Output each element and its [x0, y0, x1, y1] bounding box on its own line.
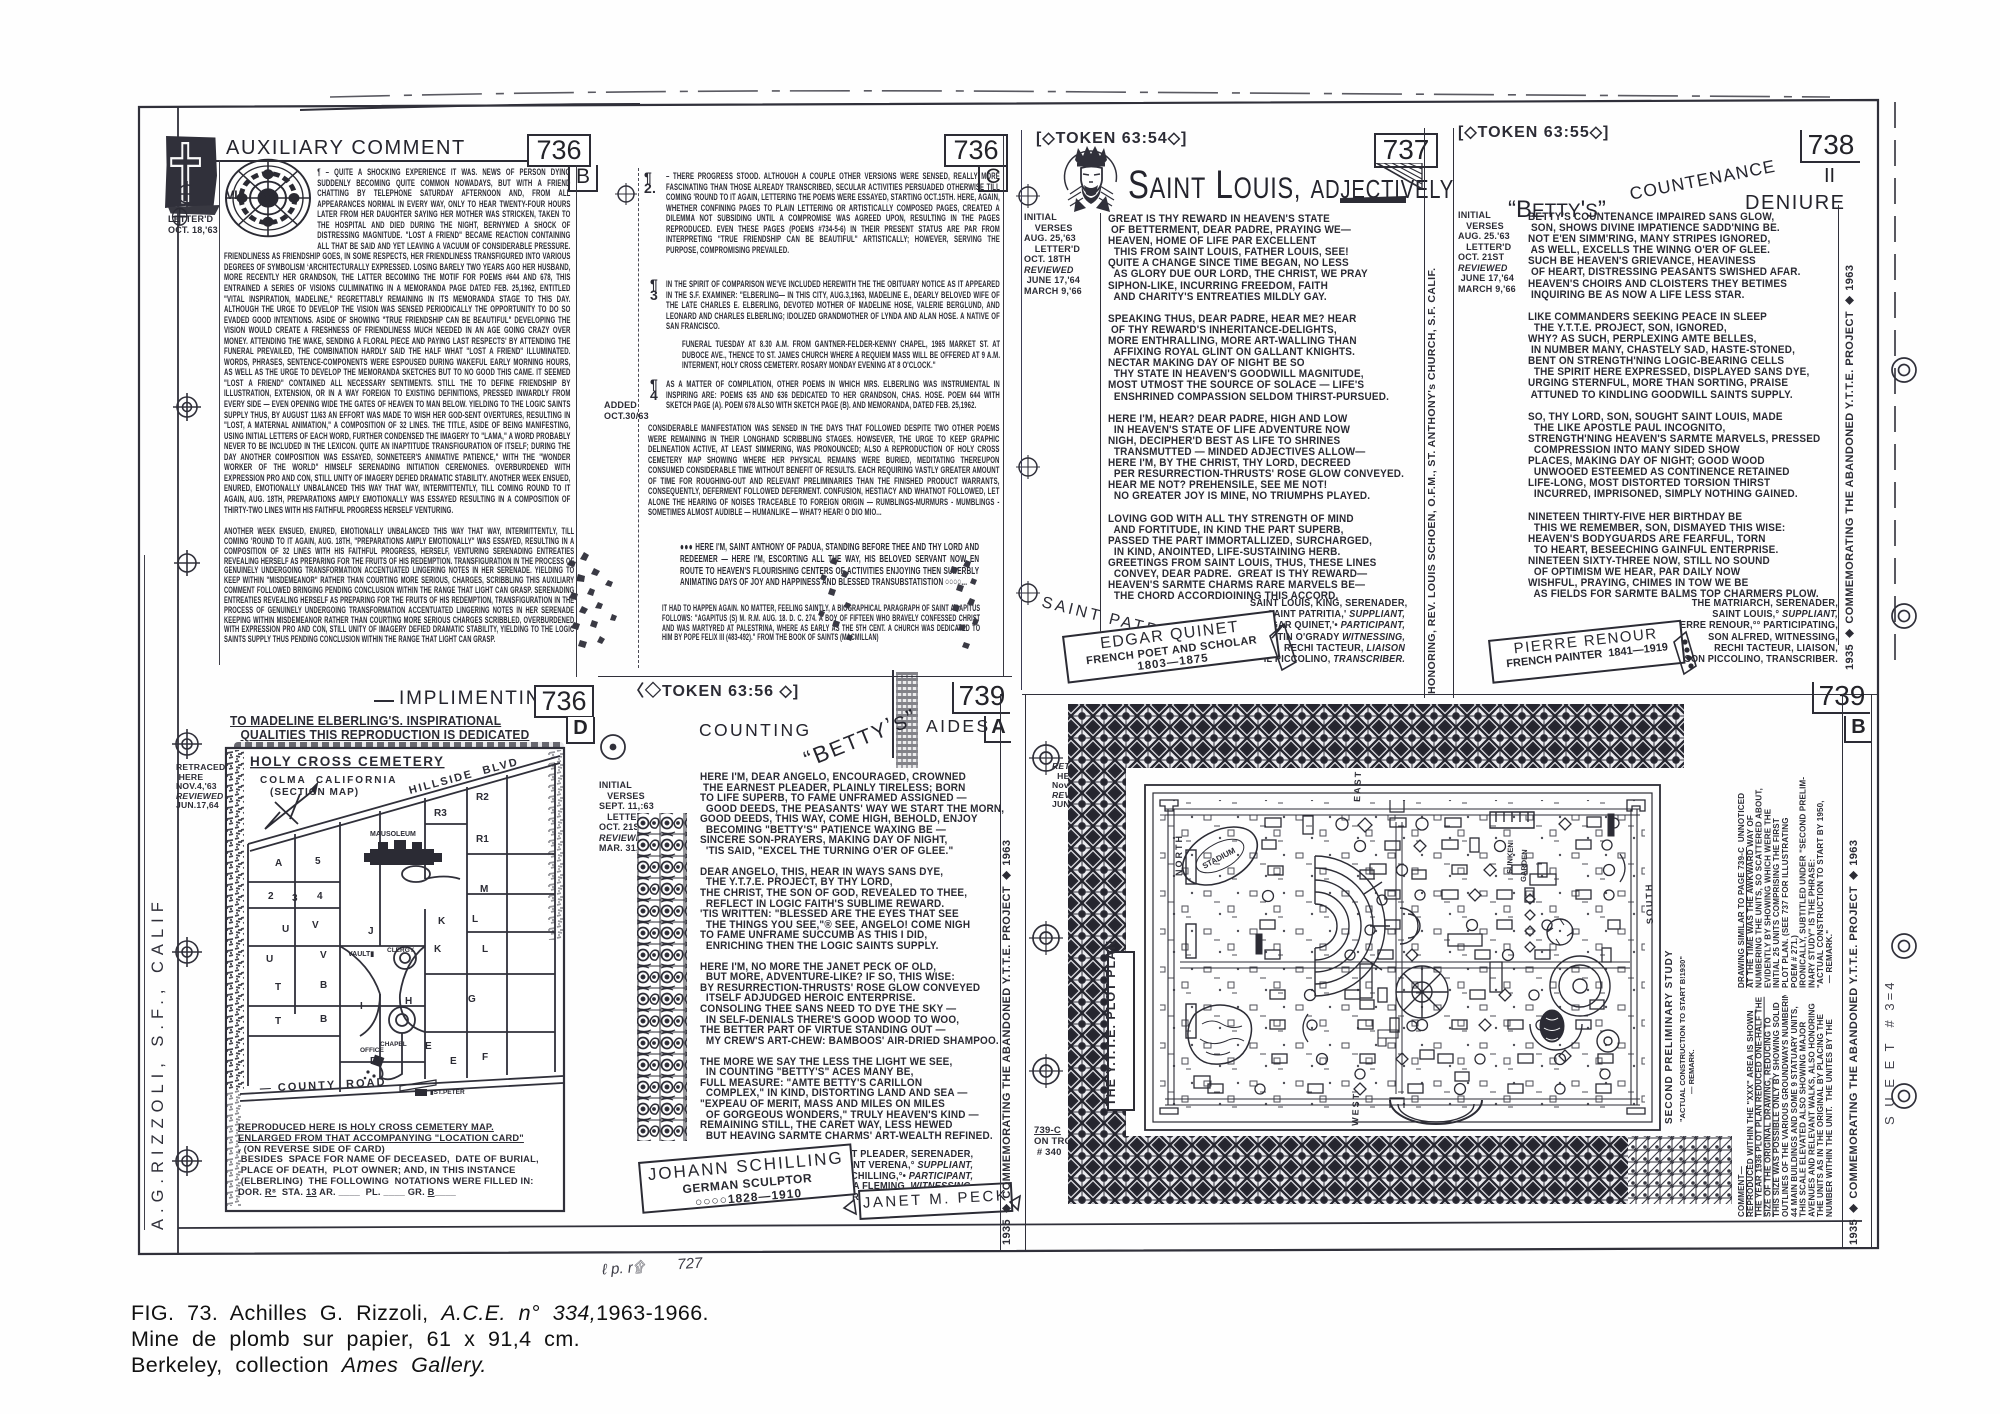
svg-text:WEST: WEST [1350, 1092, 1361, 1126]
svg-text:SUNKEN: SUNKEN [1505, 842, 1515, 874]
svg-text:M: M [480, 884, 488, 895]
svg-text:5: 5 [315, 856, 321, 867]
svg-text:E: E [425, 1041, 432, 1052]
svg-text:B: B [320, 980, 327, 991]
svg-text:K: K [438, 916, 446, 927]
svg-text:I: I [360, 1001, 363, 1012]
svg-text:3: 3 [292, 893, 298, 904]
svg-text:L: L [482, 944, 488, 955]
svg-text:▮ST.PETER: ▮ST.PETER [430, 1089, 465, 1096]
svg-text:U: U [266, 954, 273, 965]
svg-text:THE Y.T.T.E. PLOT PLAN: THE Y.T.T.E. PLOT PLAN [1104, 940, 1118, 1106]
svg-text:GARDEN: GARDEN [1519, 849, 1529, 882]
svg-text:— REMARK.: — REMARK. [1687, 1049, 1696, 1094]
svg-text:EAST: EAST [1352, 770, 1363, 802]
svg-text:T: T [275, 1016, 281, 1027]
svg-text:SOUTH: SOUTH [1644, 882, 1655, 924]
svg-text:H: H [405, 996, 412, 1007]
svg-text:A: A [275, 858, 282, 869]
svg-text:J: J [368, 926, 374, 937]
svg-text:OFFICE: OFFICE [360, 1047, 384, 1054]
svg-text:B: B [320, 1014, 327, 1025]
svg-text:R1: R1 [476, 834, 489, 845]
svg-text:L: L [472, 914, 478, 925]
svg-text:COLMA CALIFORNIA: COLMA CALIFORNIA [260, 775, 398, 786]
svg-text:(SECTION MAP): (SECTION MAP) [270, 787, 359, 798]
svg-text:"ACTUAL CONSTRUCTION TO START: "ACTUAL CONSTRUCTION TO START B!1930" [1678, 956, 1687, 1122]
svg-text:CLERGY: CLERGY [387, 947, 415, 954]
svg-text:V: V [320, 950, 327, 961]
svg-text:4: 4 [317, 891, 323, 902]
svg-text:U: U [282, 924, 289, 935]
svg-text:R3: R3 [434, 808, 447, 819]
svg-text:CHAPEL: CHAPEL [380, 1041, 407, 1048]
svg-text:2: 2 [268, 891, 274, 902]
svg-text:F: F [482, 1052, 488, 1063]
svg-text:MAUSOLEUM: MAUSOLEUM [370, 831, 416, 838]
svg-text:K: K [434, 944, 442, 955]
svg-text:SECOND PRELIMINARY STUDY: SECOND PRELIMINARY STUDY [1664, 949, 1675, 1124]
svg-text:R2: R2 [476, 792, 489, 803]
svg-text:HOLY CROSS CEMETERY: HOLY CROSS CEMETERY [250, 754, 445, 769]
svg-text:E: E [450, 1056, 457, 1067]
svg-text:G: G [468, 994, 476, 1005]
svg-text:NORTH: NORTH [1174, 834, 1184, 876]
svg-text:D: D [370, 1056, 377, 1067]
svg-text:VAULT▮: VAULT▮ [348, 951, 374, 958]
svg-text:T: T [275, 982, 281, 993]
svg-text:V: V [312, 920, 319, 931]
